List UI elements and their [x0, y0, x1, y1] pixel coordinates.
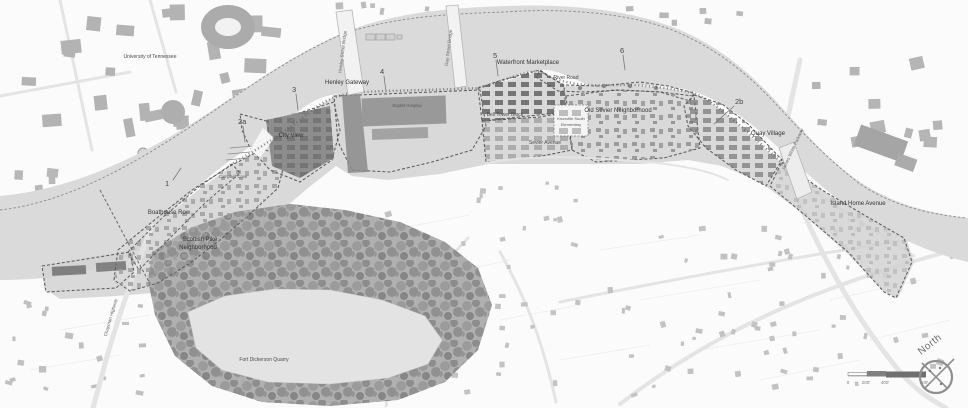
building-footprint	[480, 193, 483, 198]
building-footprint	[122, 322, 129, 325]
building-footprint	[499, 362, 504, 368]
building-footprint	[79, 342, 84, 348]
building-footprint	[622, 308, 625, 314]
building-footprint	[832, 324, 836, 328]
svg-text:2a: 2a	[238, 117, 247, 126]
svg-text:4: 4	[380, 67, 384, 76]
building-footprint	[769, 262, 775, 266]
building-footprint	[918, 129, 931, 142]
building-footprint	[821, 273, 826, 279]
building-footprint	[699, 8, 706, 14]
building-footprint	[94, 95, 108, 111]
label-old-sevier: Old Sevier Neighborhood	[584, 108, 651, 114]
building-footprint	[480, 188, 486, 194]
building-footprint	[575, 300, 581, 305]
building-footprint	[699, 226, 706, 232]
building-footprint	[86, 16, 101, 31]
building-footprint	[425, 6, 430, 12]
building-footprint	[626, 6, 634, 12]
building-footprint	[42, 114, 62, 128]
building-footprint	[681, 342, 684, 346]
arena-building	[161, 100, 185, 124]
building-footprint	[60, 39, 81, 55]
label-island-home-avenue: Island Home Avenue	[830, 201, 886, 207]
building-footprint	[735, 371, 741, 377]
building-footprint	[555, 185, 559, 189]
building-footprint	[499, 326, 505, 331]
building-footprint	[105, 67, 115, 76]
building-footprint	[840, 315, 846, 320]
building-footprint	[736, 11, 743, 16]
building-footprint	[17, 360, 24, 366]
label-boathouse-row: Boathouse Row	[148, 210, 191, 216]
building-footprint	[244, 58, 266, 73]
building-footprint	[461, 241, 466, 246]
building-footprint	[629, 354, 634, 358]
label-fort-dickerson-quarry: Fort Dickerson Quarry	[239, 357, 289, 363]
building-footprint	[779, 301, 784, 306]
svg-text:6: 6	[620, 46, 624, 55]
scale-tick-400: 400'	[881, 380, 890, 385]
building-footprint	[817, 119, 827, 126]
building-footprint	[45, 306, 49, 311]
svg-text:2b: 2b	[735, 97, 743, 106]
label-school-2: Elementary	[561, 122, 581, 127]
label-bell-tower-block: Bell Tower Block	[487, 112, 524, 118]
label-quay-village: Quay Village	[751, 131, 786, 137]
label-waterfront-marketplace: Waterfront Marketplace	[497, 60, 560, 66]
label-henley-gateway: Henley Gateway	[325, 80, 369, 86]
building-footprint	[496, 372, 501, 376]
svg-text:1: 1	[165, 179, 169, 188]
building-footprint	[855, 381, 859, 386]
stadium-field	[215, 18, 241, 36]
building-footprint	[688, 369, 694, 375]
building-footprint	[806, 376, 813, 380]
building-footprint	[116, 25, 135, 37]
label-school-1: Knoxville South	[557, 116, 585, 121]
building-footprint	[672, 20, 677, 26]
building-footprint	[336, 2, 344, 9]
building-footprint	[720, 254, 727, 260]
building-footprint	[39, 366, 46, 373]
building-footprint	[731, 253, 738, 260]
building-footprint	[495, 303, 501, 309]
building-footprint	[659, 12, 668, 18]
label-baptist-hospital: Baptist Hospital	[392, 103, 421, 108]
building-footprint	[792, 331, 796, 336]
building-footprint	[553, 380, 558, 386]
scale-tick-200: 200'	[862, 380, 871, 385]
building-footprint	[499, 294, 506, 298]
building-footprint	[545, 181, 549, 184]
building-footprint	[370, 3, 375, 8]
building-footprint	[522, 226, 526, 231]
svg-text:5: 5	[493, 51, 497, 60]
label-sevier-avenue: Sevier Avenue	[529, 140, 561, 146]
label-scottish-pike-2: Neighborhood	[179, 245, 217, 251]
building-footprint	[521, 302, 528, 306]
building-footprint	[837, 353, 843, 359]
building-footprint	[850, 67, 860, 75]
building-footprint	[21, 77, 36, 86]
building-footprint	[868, 99, 880, 109]
building-footprint	[574, 199, 578, 203]
building-footprint	[812, 82, 821, 89]
building-footprint	[553, 218, 557, 221]
building-footprint	[607, 287, 613, 294]
building-footprint	[692, 337, 696, 341]
waterfront-plan-map: University of Tennessee Boathouse Row Sc…	[0, 0, 968, 408]
building-footprint	[12, 336, 15, 341]
svg-text:3: 3	[292, 85, 296, 94]
building-footprint	[139, 343, 146, 347]
building-footprint	[930, 364, 936, 369]
building-footprint	[14, 170, 23, 180]
baptist-hospital-building	[362, 96, 447, 127]
building-footprint	[704, 18, 711, 25]
building-footprint	[361, 1, 367, 8]
building-footprint	[507, 265, 511, 269]
label-university: University of Tennessee	[124, 54, 177, 60]
label-cove: Campbell Cove	[219, 174, 248, 179]
map-canvas: University of Tennessee Boathouse Row Sc…	[0, 0, 968, 408]
label-city-view: City View	[279, 133, 305, 139]
building-footprint	[498, 186, 503, 190]
building-footprint	[933, 120, 943, 130]
scale-tick-0: 0	[847, 380, 850, 385]
label-river-road: River Road	[553, 75, 578, 81]
building-footprint	[761, 226, 767, 232]
building-footprint	[49, 176, 56, 185]
building-footprint	[550, 310, 556, 315]
building-footprint	[813, 367, 819, 372]
label-scottish-pike-1: Scottish Pike	[183, 237, 218, 243]
